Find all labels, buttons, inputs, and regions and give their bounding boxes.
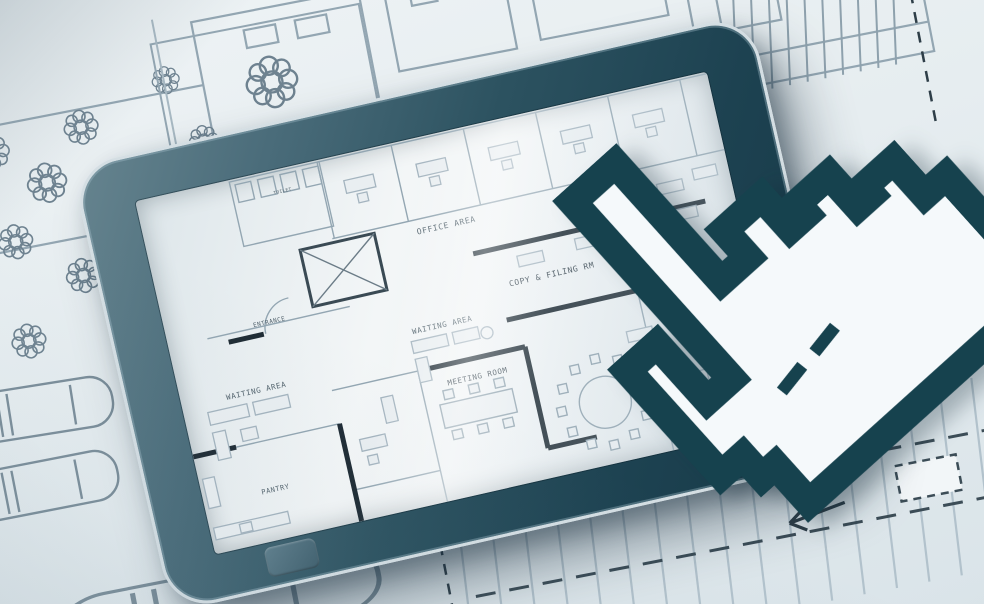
elevator-shaft bbox=[300, 233, 387, 306]
blueprint-tablet-scene: TOILET OFFICE AREA COPY & FILING RM ENTR… bbox=[0, 0, 984, 604]
label-pantry: PANTRY bbox=[261, 482, 291, 496]
label-entrance: ENTRANCE bbox=[253, 315, 286, 329]
home-button bbox=[263, 537, 320, 578]
